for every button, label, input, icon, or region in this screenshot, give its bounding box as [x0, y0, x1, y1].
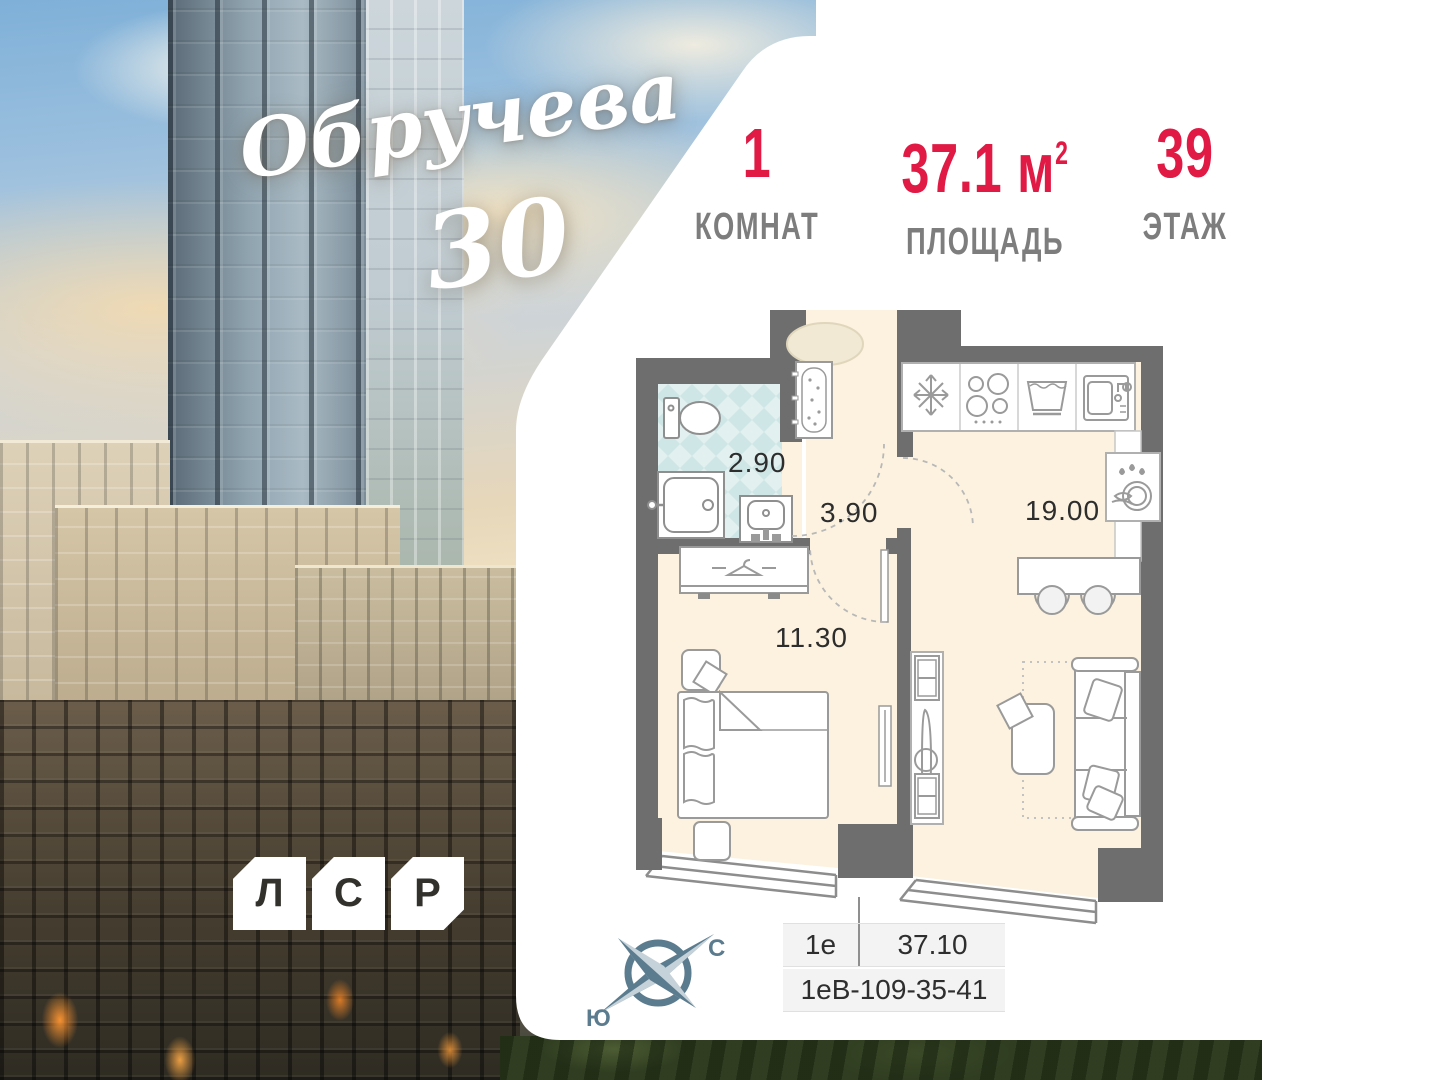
- bed: [678, 692, 828, 818]
- tv-unit: [911, 652, 943, 824]
- stat-floor: 39 ЭТАЖ: [1085, 116, 1285, 249]
- area-label: ПЛОЩАДЬ: [895, 221, 1075, 264]
- wardrobe: [680, 547, 808, 599]
- bedroom-door-leaf: [881, 550, 888, 622]
- shower: [648, 472, 724, 538]
- hall-cabinet: [792, 362, 832, 438]
- table-tick: [858, 897, 860, 924]
- sofa: [1072, 658, 1140, 830]
- floor-value: 39: [1113, 116, 1257, 190]
- apartment-code: 1еВ-109-35-41: [783, 967, 1005, 1012]
- area-bedroom: 11.30: [775, 622, 848, 653]
- compass-north: С: [708, 935, 725, 962]
- sink-icon: [1084, 376, 1131, 420]
- toilet: [664, 398, 720, 438]
- kitchen-appliances: [902, 363, 1135, 431]
- area-hallway: 3.90: [820, 497, 879, 528]
- entry-mat: [787, 323, 863, 365]
- floor-plan: 2.90 3.90 19.00 11.30: [620, 300, 1165, 950]
- stat-rooms: 1 КОМНАТ: [657, 116, 857, 249]
- area-value: 37.1 м2: [895, 116, 1075, 205]
- stat-area: 37.1 м2 ПЛОЩАДЬ: [860, 116, 1110, 264]
- dishrack-icon: [1106, 453, 1160, 521]
- compass-south: Ю: [586, 1005, 611, 1031]
- washbasin: [740, 496, 792, 542]
- table-row-top: 1е 37.10: [783, 923, 1005, 967]
- apartment-area: 37.10: [860, 924, 1005, 966]
- area-kitchen-living: 19.00: [1025, 495, 1100, 526]
- rooms-label: КОМНАТ: [685, 206, 829, 249]
- rooms-value: 1: [685, 116, 829, 190]
- stool: [694, 822, 730, 860]
- bedroom-mirror: [879, 706, 891, 786]
- apartment-type: 1е: [783, 924, 860, 966]
- floor-label: ЭТАЖ: [1113, 206, 1257, 249]
- area-bathroom: 2.90: [728, 447, 787, 478]
- compass-icon: С Ю: [580, 916, 740, 1031]
- listing-card: Обручева 30 Л С Р 1 КОМНАТ 37.1 м2 ПЛОЩА…: [0, 0, 1440, 1080]
